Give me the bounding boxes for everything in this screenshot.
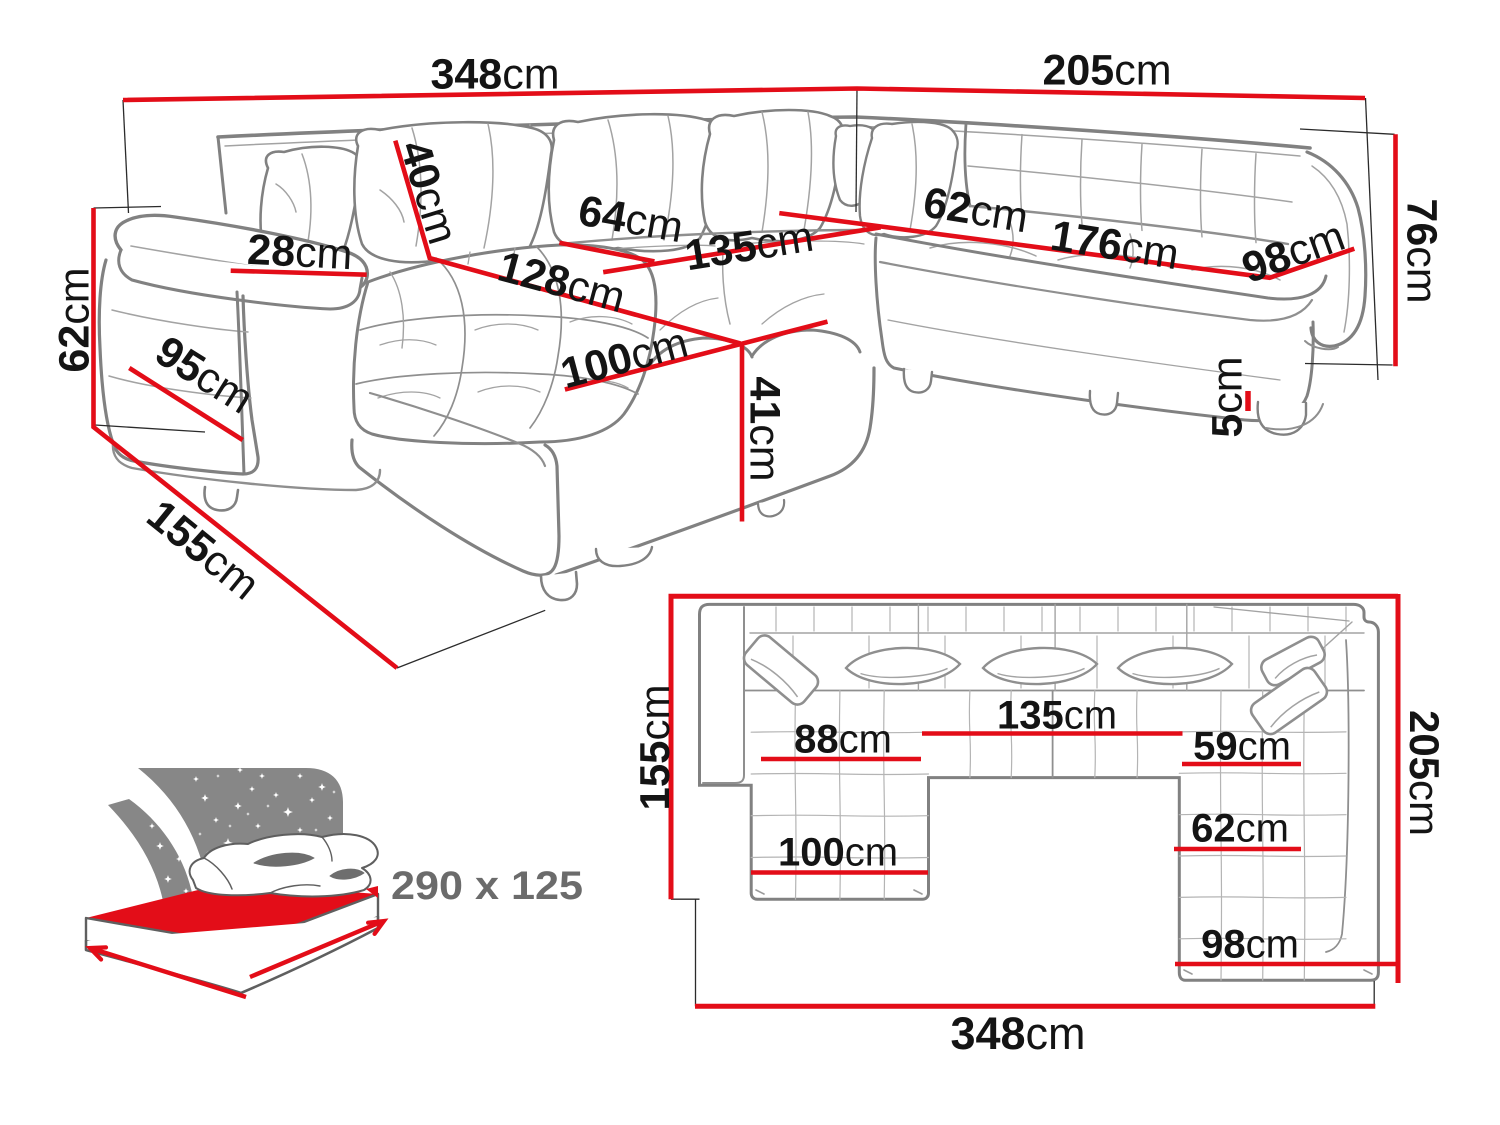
svg-text:348cm: 348cm: [430, 50, 559, 98]
svg-text:135cm: 135cm: [997, 693, 1117, 737]
svg-text:205cm: 205cm: [1042, 46, 1171, 94]
svg-text:205cm: 205cm: [1401, 710, 1448, 836]
svg-text:41cm: 41cm: [741, 376, 789, 481]
svg-text:98cm: 98cm: [1201, 922, 1299, 966]
svg-text:62cm: 62cm: [50, 267, 98, 372]
svg-text:88cm: 88cm: [794, 717, 892, 761]
svg-text:155cm: 155cm: [631, 684, 678, 810]
svg-text:5cm: 5cm: [1203, 356, 1251, 437]
svg-text:76cm: 76cm: [1398, 198, 1446, 303]
svg-text:290 x 125: 290 x 125: [391, 864, 583, 908]
svg-text:62cm: 62cm: [1191, 806, 1289, 850]
svg-text:59cm: 59cm: [1193, 724, 1291, 768]
svg-text:348cm: 348cm: [950, 1008, 1085, 1059]
svg-text:100cm: 100cm: [778, 830, 898, 874]
svg-text:28cm: 28cm: [246, 226, 354, 279]
